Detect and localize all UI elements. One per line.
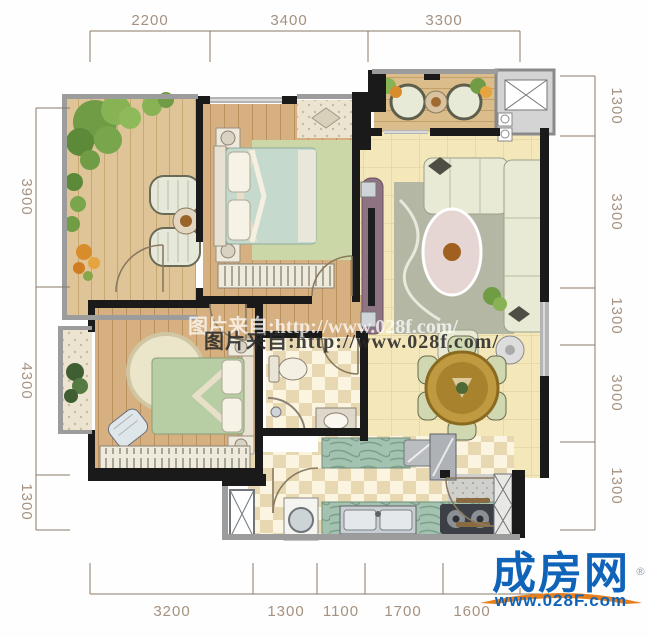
sink-bowl	[344, 510, 376, 530]
entry-mat	[456, 498, 490, 503]
table-cup	[431, 97, 441, 107]
pillow	[228, 200, 250, 240]
dimension-right	[560, 76, 595, 530]
toilet-tank	[269, 356, 279, 382]
dim-label: 3400	[270, 12, 307, 29]
dim-label: 3300	[608, 193, 625, 230]
dim-label: 3300	[425, 12, 462, 29]
plant-icon	[480, 86, 492, 98]
dim-label: 1300	[608, 87, 625, 124]
pillow	[222, 398, 242, 432]
floor-plan-drawing: 2200 3400 3300 3900 4300 1300 1300 3300 …	[0, 0, 650, 637]
sink-bowl	[380, 510, 412, 530]
dim-label: 3000	[608, 374, 625, 411]
floor-lamp-icon	[505, 345, 515, 355]
dim-label: 1300	[18, 483, 35, 520]
plant-icon	[493, 297, 507, 311]
entry-duct	[494, 474, 512, 536]
washer-door-icon	[289, 508, 313, 532]
speaker-icon	[361, 182, 376, 197]
table-decor	[443, 243, 461, 261]
table-plant-icon	[456, 382, 468, 394]
registered-mark: ®	[635, 549, 648, 595]
shower-head-icon	[271, 407, 281, 417]
site-logo[interactable]: 成房网® www.028F.com	[472, 551, 650, 635]
toilet-icon	[279, 358, 307, 380]
pillow	[228, 152, 250, 192]
bed-blanket	[298, 150, 316, 242]
dim-label: 1300	[267, 603, 304, 620]
speaker-icon	[361, 312, 376, 327]
dresser-detail	[220, 266, 332, 286]
kitchen-counter-top	[322, 438, 410, 468]
floorplan-page: 2200 3400 3300 3900 4300 1300 1300 3300 …	[0, 0, 650, 637]
dim-label: 1100	[323, 603, 359, 620]
burner-icon	[477, 516, 484, 523]
tv-icon	[368, 208, 375, 306]
sink-icon	[324, 413, 348, 429]
logo-brand-text: 成房网®	[472, 551, 650, 597]
dim-label: 1300	[608, 467, 625, 504]
wardrobe-detail	[102, 448, 248, 470]
dim-label: 3200	[153, 603, 190, 620]
faucet-icon	[375, 511, 381, 517]
dimension-top	[90, 31, 520, 62]
pillow	[222, 360, 242, 394]
plant-icon	[390, 86, 402, 98]
master-bed-headboard	[214, 146, 226, 246]
dim-label: 1700	[384, 603, 421, 620]
dim-label: 1300	[608, 297, 625, 334]
lamp-icon	[221, 131, 235, 145]
dim-label: 2200	[131, 12, 168, 29]
dim-label: 3900	[18, 178, 35, 215]
dim-label: 4300	[18, 362, 35, 399]
table-cup	[180, 215, 192, 227]
burner-icon	[453, 516, 460, 523]
lamp-icon	[235, 341, 247, 353]
